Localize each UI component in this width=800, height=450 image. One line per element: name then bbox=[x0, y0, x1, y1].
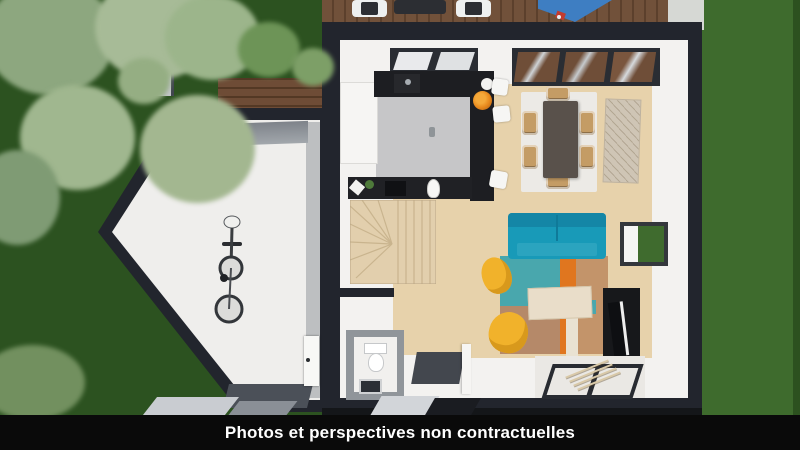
window-pane bbox=[393, 52, 433, 70]
hedge-right-edge bbox=[793, 0, 800, 415]
sofa bbox=[508, 213, 606, 259]
kitchen-cabinets bbox=[340, 82, 378, 164]
bush bbox=[118, 58, 170, 104]
bush bbox=[238, 22, 300, 77]
bar-stool-1 bbox=[491, 78, 509, 96]
coffee-table-leg bbox=[566, 315, 578, 359]
bar-stool-3 bbox=[489, 170, 509, 190]
glass-pane bbox=[514, 52, 560, 82]
kitchen-counter bbox=[374, 71, 472, 97]
dining-chair-right-1 bbox=[579, 111, 595, 135]
toilet-bowl bbox=[368, 353, 384, 372]
dining-table bbox=[543, 101, 578, 178]
lawn-right bbox=[702, 0, 800, 415]
island-plant bbox=[365, 180, 374, 189]
caption-bar: Photos et perspectives non contractuelle… bbox=[0, 415, 800, 450]
dining-chair-left-1 bbox=[522, 111, 538, 135]
deck-chair-cushion bbox=[465, 2, 482, 15]
glass-pane bbox=[562, 52, 608, 82]
window-pane-grass bbox=[638, 226, 664, 262]
wc-room bbox=[346, 330, 404, 400]
deck-chair-1 bbox=[352, 0, 387, 17]
driveway-patch-2 bbox=[229, 401, 298, 415]
caption-text: Photos et perspectives non contractuelle… bbox=[225, 423, 575, 443]
floor-drain bbox=[429, 127, 435, 137]
fruit-bowl bbox=[473, 91, 492, 110]
sofa-split bbox=[556, 215, 558, 241]
sideboard bbox=[603, 98, 642, 183]
deck-table bbox=[394, 0, 446, 14]
floorplan-render: Photos et perspectives non contractuelle… bbox=[0, 0, 800, 450]
bush bbox=[292, 48, 334, 86]
garage-door-handle bbox=[306, 358, 310, 362]
hall-doormat bbox=[411, 352, 465, 384]
glass-pane bbox=[610, 52, 656, 82]
window-pane-open bbox=[624, 226, 638, 262]
kitchen-floor bbox=[376, 94, 472, 178]
bicycle bbox=[212, 206, 256, 338]
driveway-patch-1 bbox=[143, 397, 239, 415]
sink-faucet bbox=[405, 79, 411, 85]
island-tray bbox=[385, 181, 406, 196]
living-window bbox=[620, 222, 668, 266]
driveway-shadow-wedge bbox=[425, 398, 481, 415]
dining-glass-roof bbox=[512, 48, 660, 86]
wc-mat bbox=[359, 379, 382, 394]
sofa-seat bbox=[517, 243, 597, 256]
shade-sail-dot bbox=[557, 15, 561, 19]
dining-chair-top bbox=[546, 86, 570, 101]
dining-chair-left-2 bbox=[522, 145, 538, 169]
island-vase bbox=[427, 179, 440, 198]
staircase bbox=[350, 200, 436, 284]
coffee-table bbox=[527, 286, 592, 320]
bar-stool-2 bbox=[492, 105, 511, 123]
wall-stub bbox=[340, 288, 394, 297]
deck-chair-2 bbox=[456, 0, 491, 17]
hall-partition bbox=[462, 344, 471, 394]
tree-over-garage bbox=[140, 95, 255, 203]
window-pane bbox=[435, 52, 475, 70]
dining-chair-right-2 bbox=[579, 145, 595, 169]
deck-chair-cushion bbox=[361, 2, 378, 15]
